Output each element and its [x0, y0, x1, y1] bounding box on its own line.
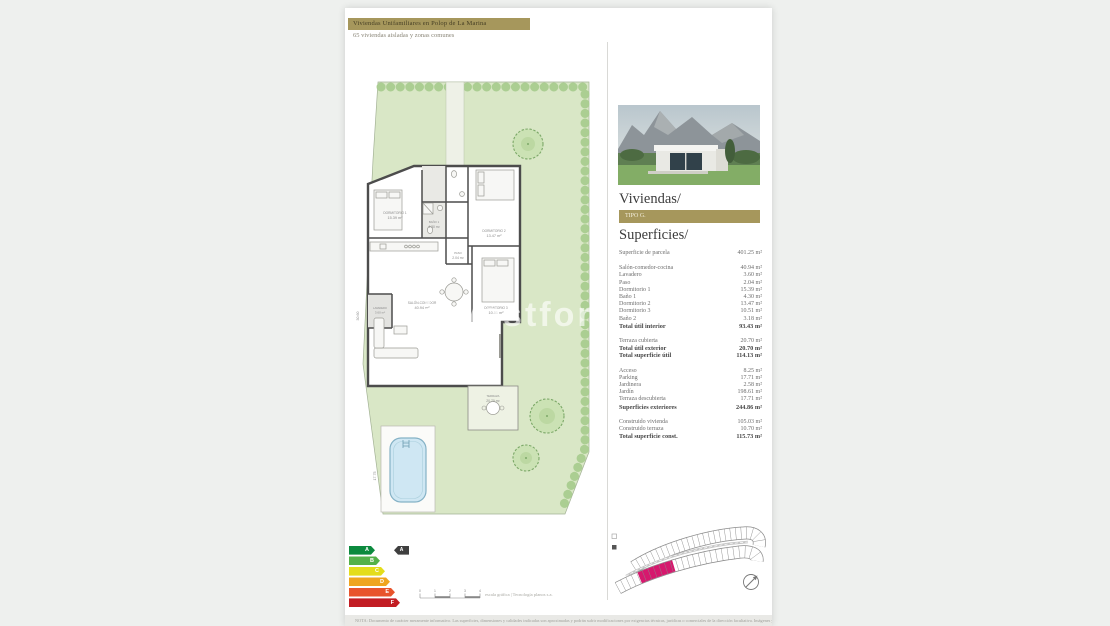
- entrance-path: [446, 82, 464, 166]
- table-total-row: Superficies exteriores244.86 m²: [619, 404, 762, 411]
- table-row: Superficie de parcela401.25 m²: [619, 250, 762, 257]
- svg-text:4: 4: [479, 589, 481, 593]
- table-total-row: Total útil interior93.43 m²: [619, 323, 762, 330]
- table-row: Jardín198.61 m²: [619, 389, 762, 396]
- tipo-label: TIPO G.: [625, 213, 646, 219]
- plan-sheet: Viviendas Unifamiliares en Polop de La M…: [345, 8, 772, 626]
- energy-bar: D: [349, 577, 390, 586]
- table-row: Paso2.04 m²: [619, 280, 762, 287]
- svg-text:1: 1: [434, 589, 436, 593]
- svg-text:0: 0: [419, 589, 421, 593]
- svg-text:40.94 m²: 40.94 m²: [415, 306, 431, 310]
- svg-text:PASO: PASO: [454, 251, 462, 255]
- sheet-title-bar: Viviendas Unifamiliares en Polop de La M…: [348, 18, 530, 30]
- energy-bar: C: [349, 567, 385, 576]
- svg-text:13.47 m²: 13.47 m²: [487, 234, 503, 238]
- table-row: Baño 23.18 m²: [619, 316, 762, 323]
- energy-bar: B: [349, 556, 380, 565]
- svg-text:DORMITORIO 2: DORMITORIO 2: [482, 229, 506, 233]
- table-row: Salón-comedor-cocina40.94 m²: [619, 265, 762, 272]
- energy-rating-chart: A B C D E F A: [349, 546, 413, 609]
- scale-bar: 0 1 2 3 4: [418, 588, 482, 602]
- svg-text:2.04 m²: 2.04 m²: [452, 256, 464, 260]
- tree-icon: [513, 129, 543, 159]
- sheet-title: Viviendas Unifamiliares en Polop de La M…: [353, 20, 487, 27]
- sheet-subtitle: 65 viviendas aisladas y zonas comunes: [353, 32, 454, 39]
- site-plan: [608, 510, 768, 602]
- footer-disclaimer: NOTA: Documento de carácter meramente in…: [345, 615, 772, 626]
- superficies-title: Superficies/: [619, 227, 688, 244]
- energy-bar: A: [349, 546, 375, 555]
- svg-text:17.75: 17.75: [373, 472, 377, 481]
- table-row: Terraza descubierta17.71 m²: [619, 396, 762, 403]
- svg-text:20.70 m²: 20.70 m²: [486, 399, 500, 403]
- table-total-row: Total superficie útil114.13 m²: [619, 352, 762, 359]
- svg-text:3.60 m²: 3.60 m²: [375, 311, 385, 315]
- pool: [390, 438, 426, 502]
- tree-icon: [513, 445, 539, 471]
- svg-text:10.51 m²: 10.51 m²: [489, 311, 505, 315]
- svg-text:4.30 m²: 4.30 m²: [428, 225, 440, 229]
- energy-bar: F: [349, 598, 400, 607]
- table-row: Dormitorio 115.39 m²: [619, 287, 762, 294]
- svg-text:BAÑO 1: BAÑO 1: [429, 219, 440, 224]
- table-row: Baño 14.30 m²: [619, 294, 762, 301]
- table-total-row: Total superficie const.115.73 m²: [619, 433, 762, 440]
- table-row: Dormitorio 310.51 m²: [619, 308, 762, 315]
- svg-text:3: 3: [464, 589, 466, 593]
- cypress-tree: [725, 139, 735, 163]
- svg-text:2: 2: [449, 589, 451, 593]
- floor-plan: DORMITORIO 1 15.39 m² BAÑO 1 4.30 m² DOR…: [350, 66, 602, 522]
- energy-indicator: A: [394, 546, 409, 555]
- table-total-row: Total útil exterior20.70 m²: [619, 345, 762, 352]
- scale-credit: escala gráfica | Tecnología planos s.a.: [485, 592, 553, 597]
- table-row: Parking17.71 m²: [619, 375, 762, 382]
- viviendas-title: Viviendas/: [619, 191, 681, 208]
- table-row: Construido vivienda105.03 m²: [619, 419, 762, 426]
- legend-swatch: [612, 534, 617, 539]
- table-row: Jardinera2.58 m²: [619, 382, 762, 389]
- floor-plan-drawing: DORMITORIO 1 15.39 m² BAÑO 1 4.30 m² DOR…: [350, 66, 602, 522]
- tree-icon: [530, 399, 564, 433]
- svg-text:TERRAZA: TERRAZA: [486, 394, 499, 398]
- legend-swatch: [612, 545, 617, 550]
- svg-text:DORMITORIO 3: DORMITORIO 3: [484, 306, 508, 310]
- table-row: Lavadero3.60 m²: [619, 272, 762, 279]
- svg-text:SALÓN-COMEDOR: SALÓN-COMEDOR: [408, 300, 437, 305]
- energy-bar: E: [349, 588, 395, 597]
- terrace-edge: [648, 171, 708, 174]
- villa-roof: [654, 145, 718, 151]
- tipo-bar: TIPO G.: [619, 210, 760, 223]
- svg-text:15.39 m²: 15.39 m²: [388, 216, 404, 220]
- table-row: Terraza cubierta20.70 m²: [619, 338, 762, 345]
- table-row: Acceso8.25 m²: [619, 368, 762, 375]
- villa-render-photo: [618, 105, 760, 185]
- svg-text:DORMITORIO 1: DORMITORIO 1: [383, 211, 407, 215]
- table-row: Dormitorio 213.47 m²: [619, 301, 762, 308]
- svg-text:LAVADERO: LAVADERO: [373, 306, 387, 310]
- table-row: Construido terraza10.70 m²: [619, 426, 762, 433]
- north-arrow-icon: [744, 575, 759, 590]
- surfaces-table: Superficie de parcela401.25 m² Salón-com…: [619, 250, 762, 440]
- svg-text:30.60: 30.60: [356, 312, 360, 321]
